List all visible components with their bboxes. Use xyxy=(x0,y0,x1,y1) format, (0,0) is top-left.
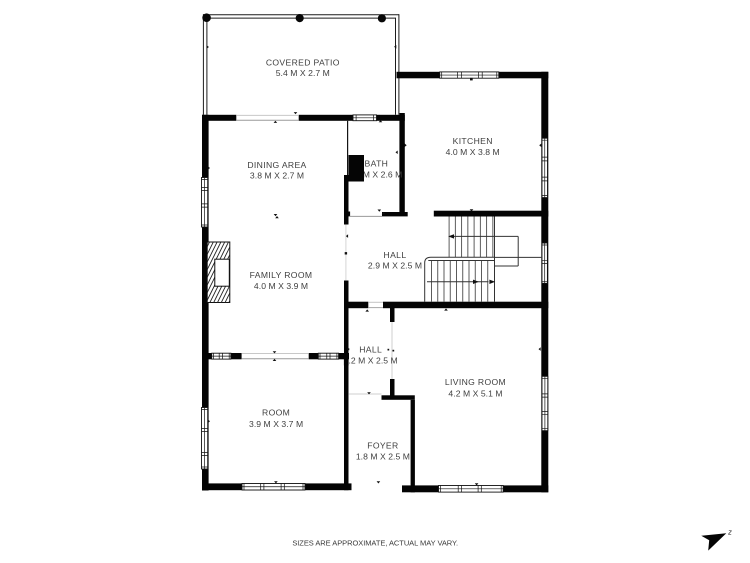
svg-text:HALL: HALL xyxy=(384,250,407,260)
svg-text:4.2 M X 5.1 M: 4.2 M X 5.1 M xyxy=(448,388,502,398)
svg-text:LIVING ROOM: LIVING ROOM xyxy=(445,377,506,387)
svg-text:HALL: HALL xyxy=(359,344,382,354)
svg-text:KITCHEN: KITCHEN xyxy=(453,136,493,146)
svg-text:4.0 M X 3.8 M: 4.0 M X 3.8 M xyxy=(446,147,500,157)
svg-text:DINING AREA: DINING AREA xyxy=(247,160,306,170)
svg-text:2.9 M X 2.5 M: 2.9 M X 2.5 M xyxy=(368,261,422,271)
svg-text:1.8 M X 2.5 M: 1.8 M X 2.5 M xyxy=(356,452,410,462)
svg-text:5.4 M X 2.7 M: 5.4 M X 2.7 M xyxy=(276,68,330,78)
svg-text:1.2 M X 2.5 M: 1.2 M X 2.5 M xyxy=(344,355,398,365)
svg-text:4.0 M X 3.9 M: 4.0 M X 3.9 M xyxy=(254,281,308,291)
svg-text:z: z xyxy=(727,528,732,537)
svg-text:3.9 M X 3.7 M: 3.9 M X 3.7 M xyxy=(249,419,303,429)
svg-text:BATH: BATH xyxy=(365,159,389,169)
svg-text:SIZES ARE APPROXIMATE, ACTUAL: SIZES ARE APPROXIMATE, ACTUAL MAY VARY. xyxy=(292,539,458,548)
svg-text:FOYER: FOYER xyxy=(367,441,398,451)
svg-text:ROOM: ROOM xyxy=(262,408,290,418)
svg-text:FAMILY ROOM: FAMILY ROOM xyxy=(250,270,313,280)
svg-text:3.8 M X 2.7 M: 3.8 M X 2.7 M xyxy=(250,171,304,181)
svg-text:COVERED PATIO: COVERED PATIO xyxy=(266,58,340,68)
